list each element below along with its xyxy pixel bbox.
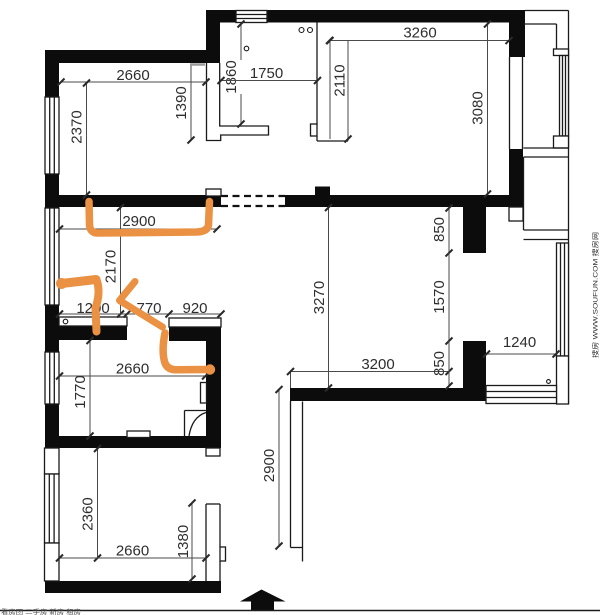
svg-text:2660: 2660: [116, 361, 149, 378]
svg-text:850: 850: [431, 351, 448, 376]
svg-text:3080: 3080: [470, 91, 487, 124]
svg-text:1860: 1860: [223, 60, 240, 93]
svg-text:1570: 1570: [431, 280, 448, 313]
svg-text:1750: 1750: [250, 65, 283, 82]
svg-text:看房团 二手房 新房 租房: 看房团 二手房 新房 租房: [1, 607, 81, 615]
svg-text:850: 850: [431, 217, 448, 242]
svg-text:2170: 2170: [103, 250, 120, 283]
svg-text:3270: 3270: [311, 281, 328, 314]
svg-text:3260: 3260: [403, 25, 436, 42]
svg-text:2370: 2370: [69, 110, 86, 143]
svg-text:920: 920: [182, 300, 207, 317]
svg-text:3200: 3200: [361, 356, 394, 373]
svg-text:1240: 1240: [503, 334, 536, 351]
svg-text:2900: 2900: [261, 449, 278, 482]
svg-text:2360: 2360: [80, 497, 97, 530]
svg-text:1380: 1380: [175, 525, 192, 558]
svg-text:2660: 2660: [116, 543, 149, 560]
svg-text:2900: 2900: [122, 213, 155, 230]
svg-text:1390: 1390: [173, 86, 190, 119]
svg-text:2660: 2660: [116, 67, 149, 84]
svg-text:1770: 1770: [72, 375, 89, 408]
svg-text:2110: 2110: [332, 64, 349, 96]
svg-text:搜房 WWW.SOUFUN.COM 搜房网: 搜房 WWW.SOUFUN.COM 搜房网: [591, 232, 600, 358]
